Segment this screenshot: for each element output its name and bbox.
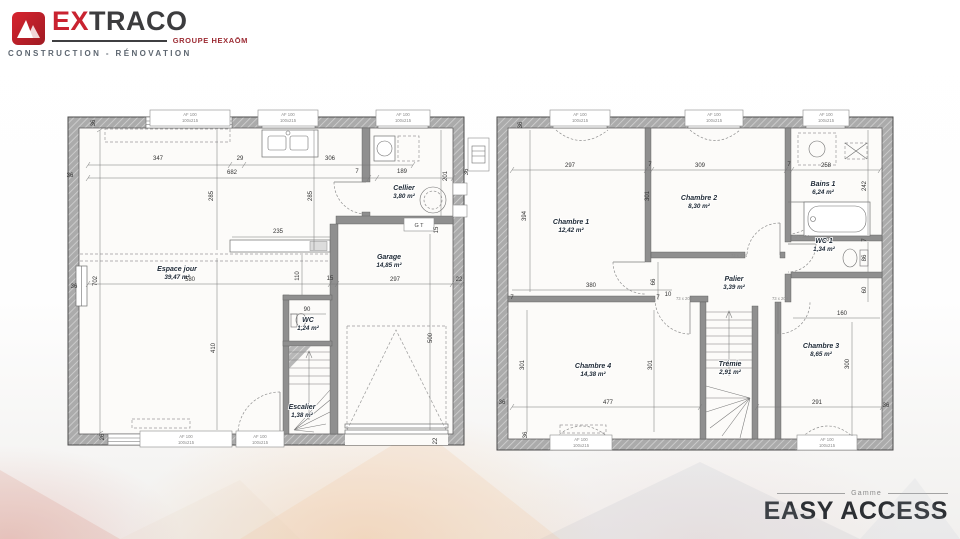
room-area-label: 6,24 m² bbox=[812, 189, 835, 196]
dim-label: 291 bbox=[812, 400, 823, 406]
dim-label: 60 bbox=[862, 286, 868, 293]
dim-label: 285 bbox=[209, 190, 215, 201]
bathtub-icon bbox=[804, 202, 870, 236]
spec-label: 73 x 204 bbox=[793, 234, 810, 239]
spec-label: AF 100 bbox=[819, 112, 833, 117]
dim-label: 15 bbox=[434, 226, 440, 233]
room-area-label: 1,38 m² bbox=[291, 412, 314, 419]
room-name-label: WC 1 bbox=[815, 238, 833, 245]
spec-label: 73 x 204 bbox=[731, 253, 748, 258]
room-area-label: 3,80 m² bbox=[393, 193, 416, 200]
dim-label: 110 bbox=[295, 271, 301, 281]
dim-label: 477 bbox=[603, 400, 614, 406]
spec-label: AF 100 bbox=[573, 112, 587, 117]
dim-label: 22 bbox=[433, 437, 439, 444]
room-name-label: Garage bbox=[377, 254, 401, 261]
dim-label: 242 bbox=[862, 180, 868, 191]
dim-label: 306 bbox=[325, 156, 336, 162]
spec-label: 100x215 bbox=[178, 440, 195, 445]
dim-label: 301 bbox=[520, 359, 526, 370]
room-name-label: WC bbox=[302, 317, 315, 324]
dim-label: 26 bbox=[100, 433, 106, 440]
dim-label: 36 bbox=[67, 173, 74, 179]
dim-label: 347 bbox=[153, 156, 164, 162]
ground-floor-plan: Espace jour39,47 m²Cellier3,80 m²Garage1… bbox=[67, 110, 489, 447]
room-area-label: 8,30 m² bbox=[688, 203, 711, 210]
room-name-label: Chambre 4 bbox=[575, 363, 611, 370]
dim-label: 702 bbox=[93, 275, 99, 286]
room-name-label: Escalier bbox=[289, 404, 317, 411]
spec-label: AF 100 bbox=[281, 112, 295, 117]
spec-label: 100x215 bbox=[280, 118, 297, 123]
spec-label: G T bbox=[414, 223, 424, 229]
dim-label: 22 bbox=[456, 277, 463, 283]
room-area-label: 8,65 m² bbox=[810, 351, 833, 358]
dim-label: 36 bbox=[71, 284, 78, 290]
room-area-label: 14,38 m² bbox=[580, 371, 606, 378]
dim-label: 86 bbox=[862, 254, 868, 261]
dim-label: 300 bbox=[845, 358, 851, 369]
spec-label: AF 100 bbox=[396, 112, 410, 117]
dim-label: 189 bbox=[397, 169, 408, 175]
dim-label: 500 bbox=[428, 332, 434, 343]
dim-label: 36 bbox=[518, 121, 524, 128]
dim-label: 309 bbox=[695, 163, 706, 169]
room-area-label: 1,24 m² bbox=[297, 325, 320, 332]
dim-label: 160 bbox=[837, 311, 848, 317]
room-name-label: Chambre 2 bbox=[681, 195, 717, 202]
spec-label: AF 100 bbox=[574, 437, 588, 442]
dim-label: 90 bbox=[304, 307, 311, 313]
dim-label: 36 bbox=[91, 119, 97, 126]
island-counter bbox=[230, 240, 330, 252]
room-name-label: Espace jour bbox=[157, 266, 198, 273]
first-floor-plan: Chambre 112,42 m²Chambre 28,30 m²Bains 1… bbox=[497, 110, 893, 450]
room-name-label: Trémie bbox=[719, 361, 742, 368]
room-area-label: 3,39 m² bbox=[723, 284, 746, 291]
spec-label: AF 100 bbox=[820, 437, 834, 442]
spec-label: 100x215 bbox=[252, 440, 269, 445]
spec-label: 73 x 204 bbox=[676, 296, 693, 301]
room-name-label: Palier bbox=[724, 276, 744, 283]
dim-label: 285 bbox=[308, 190, 314, 201]
spec-label: AF 100 bbox=[179, 434, 193, 439]
dim-label: 36 bbox=[499, 400, 506, 406]
spec-label: AF 100 bbox=[707, 112, 721, 117]
spec-label: 100x215 bbox=[819, 443, 836, 448]
dim-label: 235 bbox=[273, 229, 284, 235]
room-area-label: 14,85 m² bbox=[376, 262, 402, 269]
dim-label: 301 bbox=[645, 190, 651, 201]
dim-label: 36 bbox=[883, 403, 890, 409]
room-name-label: Chambre 3 bbox=[803, 343, 839, 350]
dim-label: 297 bbox=[390, 277, 401, 283]
dim-label: 36 bbox=[464, 168, 470, 175]
dim-label: 682 bbox=[227, 170, 238, 176]
room-name-label: Cellier bbox=[393, 185, 416, 192]
room-area-label: 1,34 m² bbox=[813, 246, 836, 253]
spec-label: 100x215 bbox=[706, 118, 723, 123]
room-name-label: Chambre 1 bbox=[553, 219, 589, 226]
spec-label: 100x215 bbox=[573, 443, 590, 448]
spec-label: AF 100 bbox=[183, 112, 197, 117]
spec-label: 100x215 bbox=[818, 118, 835, 123]
floor-area bbox=[508, 128, 882, 439]
room-area-label: 2,91 m² bbox=[718, 369, 742, 376]
spec-label: 73 x 204 bbox=[772, 296, 789, 301]
room-area-label: 12,42 m² bbox=[558, 227, 584, 234]
page: EXTRACO GROUPE HEXAŌM CONSTRUCTION - RÉN… bbox=[0, 0, 960, 539]
dim-label: 410 bbox=[211, 342, 217, 353]
dim-label: 394 bbox=[522, 210, 528, 221]
spec-label: AF 100 bbox=[253, 434, 267, 439]
dim-label: 201 bbox=[443, 170, 449, 181]
dim-label: 15 bbox=[327, 276, 334, 282]
floor-plans-canvas: Espace jour39,47 m²Cellier3,80 m²Garage1… bbox=[0, 0, 960, 539]
spec-label: 100x215 bbox=[395, 118, 412, 123]
dim-label: 66 bbox=[651, 278, 657, 285]
dim-label: 29 bbox=[237, 156, 244, 162]
dim-label: 36 bbox=[523, 431, 529, 438]
dim-label: 301 bbox=[648, 359, 654, 370]
dim-label: 258 bbox=[821, 163, 832, 169]
dim-label: 380 bbox=[586, 283, 597, 289]
dim-label: 10 bbox=[665, 292, 672, 298]
spec-label: 100x215 bbox=[572, 118, 589, 123]
room-name-label: Bains 1 bbox=[811, 181, 836, 188]
spec-label: 100x215 bbox=[182, 118, 199, 123]
dim-label: 580 bbox=[185, 277, 196, 283]
dim-label: 297 bbox=[565, 163, 576, 169]
